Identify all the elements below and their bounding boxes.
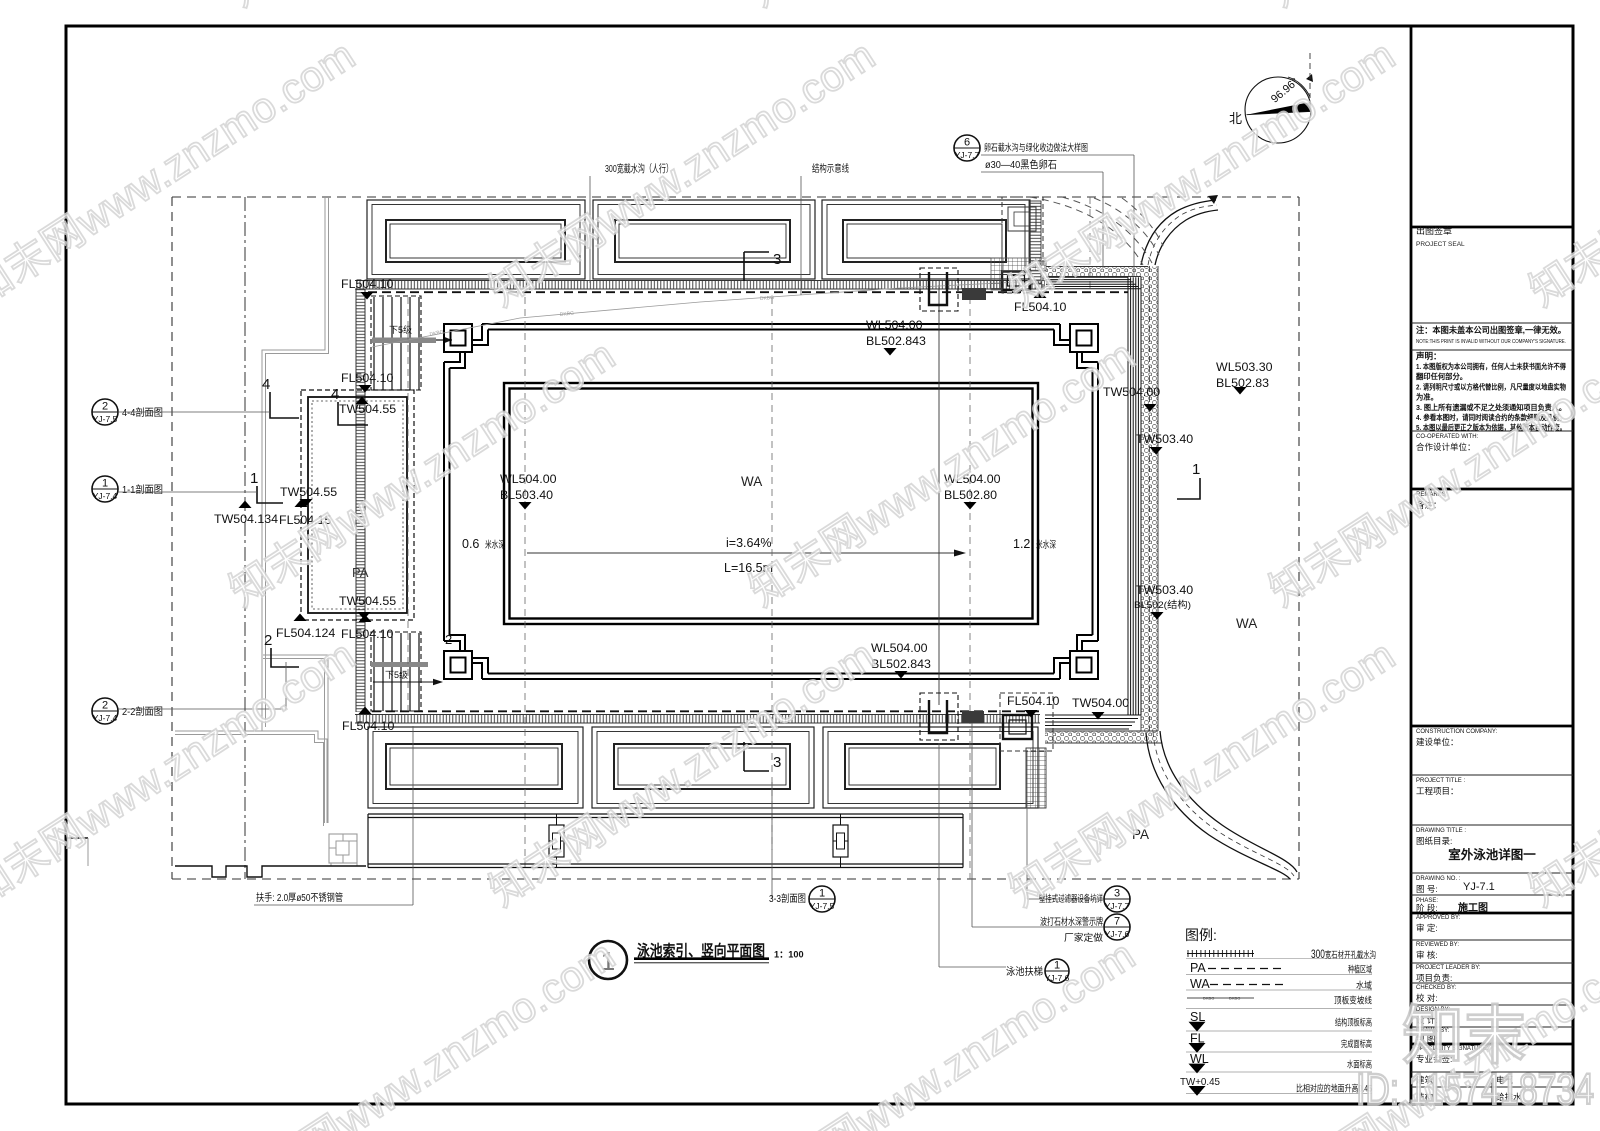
svg-text:阶 段:: 阶 段: [1416, 903, 1438, 913]
svg-text:CONSTRUCTION COMPANY:: CONSTRUCTION COMPANY: [1416, 729, 1498, 735]
svg-text:图 号:: 图 号: [1416, 884, 1438, 894]
svg-text:YJ-7.1: YJ-7.1 [1463, 881, 1495, 893]
svg-text:审 核:: 审 核: [1416, 950, 1438, 960]
svg-text:泳池扶梯: 泳池扶梯 [1006, 965, 1043, 978]
svg-text:CHECKED BY:: CHECKED BY: [1416, 985, 1457, 991]
svg-text:TW504.134: TW504.134 [214, 512, 278, 526]
svg-text:FL504.10: FL504.10 [341, 277, 393, 291]
svg-text:WL504.00: WL504.00 [500, 472, 557, 486]
svg-text:APPROVED BY:: APPROVED BY: [1416, 915, 1461, 921]
svg-text:i=3.64%: i=3.64% [726, 536, 772, 550]
svg-text:BL502.843: BL502.843 [866, 334, 926, 348]
svg-text:1: 1 [819, 888, 825, 900]
svg-text:出图签章: 出图签章 [1416, 225, 1452, 236]
svg-text:泳池索引、竖向平面图: 泳池索引、竖向平面图 [637, 941, 765, 960]
svg-text:米水深: 米水深 [485, 539, 505, 551]
svg-text:7: 7 [1114, 916, 1120, 928]
svg-text:1: 1 [102, 478, 108, 490]
svg-text:WA: WA [741, 474, 762, 489]
svg-text:WA: WA [1190, 977, 1210, 991]
svg-text:4-4剖面图: 4-4剖面图 [122, 406, 163, 419]
svg-text:2: 2 [445, 632, 452, 647]
svg-text:2. 请列明尺寸或以方格代替比例，凡尺量度以地盘实物: 2. 请列明尺寸或以方格代替比例，凡尺量度以地盘实物 [1416, 382, 1567, 391]
svg-text:DKBG: DKBG [1229, 996, 1240, 1001]
svg-text:2: 2 [102, 401, 108, 413]
svg-text:DRAWING TITLE :: DRAWING TITLE : [1416, 828, 1466, 834]
svg-text:TW504.00: TW504.00 [1072, 696, 1129, 710]
svg-text:ø30—40黑色卵石: ø30—40黑色卵石 [985, 158, 1057, 171]
svg-text:TW504.55: TW504.55 [339, 402, 396, 416]
svg-text:卵石截水沟与绿化收边做法大样图: 卵石截水沟与绿化收边做法大样图 [984, 142, 1088, 154]
svg-text:PA: PA [352, 565, 369, 580]
svg-text:YJ-7.5: YJ-7.5 [810, 901, 835, 911]
svg-text:结构示意线: 结构示意线 [812, 162, 849, 175]
svg-text:图例:: 图例: [1185, 927, 1217, 943]
svg-text:1: 1 [250, 470, 258, 487]
svg-text:PA: PA [1190, 961, 1206, 975]
svg-text:BL503.40: BL503.40 [500, 488, 553, 502]
svg-text:TW504.55: TW504.55 [339, 594, 396, 608]
svg-text:FL504.10: FL504.10 [341, 627, 393, 641]
svg-text:注：本图未盖本公司出图签章,一律无效。: 注：本图未盖本公司出图签章,一律无效。 [1416, 325, 1566, 335]
svg-text:YJ-7.4: YJ-7.4 [93, 491, 118, 501]
svg-text:WL504.00: WL504.00 [866, 318, 923, 332]
svg-text:米水深: 米水深 [1036, 539, 1056, 551]
svg-text:下5级: 下5级 [385, 669, 408, 680]
svg-text:3: 3 [1114, 888, 1120, 900]
svg-text:1: 1 [1192, 461, 1200, 478]
svg-text:3: 3 [773, 251, 781, 268]
svg-text:PROJECT TITLE :: PROJECT TITLE : [1416, 778, 1465, 784]
svg-text:ID: 1157418734: ID: 1157418734 [1356, 1065, 1594, 1114]
svg-text:1：100: 1：100 [774, 950, 804, 960]
svg-text:为准。: 为准。 [1416, 393, 1438, 402]
svg-text:下5级: 下5级 [389, 324, 412, 335]
svg-text:TW503.40: TW503.40 [1136, 432, 1193, 446]
svg-text:3-3剖面图: 3-3剖面图 [769, 892, 806, 905]
svg-text:建设单位：: 建设单位： [1416, 737, 1459, 747]
svg-text:完成面标高: 完成面标高 [1341, 1038, 1372, 1049]
svg-text:WA: WA [1236, 616, 1257, 631]
svg-text:2-2剖面图: 2-2剖面图 [122, 705, 163, 718]
svg-text:BL502(结构): BL502(结构) [1134, 599, 1191, 611]
svg-text:顶板变坡线: 顶板变坡线 [1334, 995, 1372, 1006]
svg-text:2: 2 [264, 632, 272, 649]
svg-text:项目负责:: 项目负责: [1416, 973, 1452, 983]
svg-text:厂家定做: 厂家定做 [1064, 932, 1103, 944]
svg-text:DRAWING NO. :: DRAWING NO. : [1416, 876, 1461, 882]
svg-text:知末: 知末 [1402, 1000, 1526, 1072]
svg-text:PROJECT SEAL: PROJECT SEAL [1416, 241, 1465, 248]
svg-text:FL504.10: FL504.10 [342, 719, 394, 733]
svg-text:NOTE:THIS PRINT IS INVALID WIT: NOTE:THIS PRINT IS INVALID WITHOUT OUR C… [1416, 339, 1566, 345]
svg-text:TW503.40: TW503.40 [1136, 583, 1193, 597]
svg-text:0.6: 0.6 [462, 537, 479, 551]
svg-text:WL503.30: WL503.30 [1216, 360, 1273, 374]
svg-text:YJ-7.7: YJ-7.7 [955, 150, 980, 160]
svg-text:6: 6 [964, 137, 970, 149]
svg-text:工程项目：: 工程项目： [1416, 786, 1459, 796]
svg-text:DKBG: DKBG [760, 295, 775, 302]
svg-text:扶手: 2.0厚ø50不锈钢管: 扶手: 2.0厚ø50不锈钢管 [256, 891, 343, 904]
svg-text:YJ-7.7: YJ-7.7 [1105, 901, 1130, 911]
svg-text:WL504.00: WL504.00 [871, 641, 928, 655]
svg-text:施工图: 施工图 [1458, 901, 1488, 914]
svg-text:翻印任何部分。: 翻印任何部分。 [1416, 372, 1467, 381]
svg-text:YJ-7.5: YJ-7.5 [93, 414, 118, 424]
svg-text:FL504.10: FL504.10 [341, 371, 393, 385]
svg-text:4: 4 [331, 386, 339, 403]
svg-text:DKBG: DKBG [1203, 996, 1214, 1001]
svg-text:结构顶板标高: 结构顶板标高 [1335, 1017, 1372, 1028]
svg-text:种植区域: 种植区域 [1348, 964, 1372, 975]
svg-text:YJ-7.4: YJ-7.4 [93, 713, 118, 723]
svg-text:1. 本图版权为本公司拥有，任何人士未获书面允许不得: 1. 本图版权为本公司拥有，任何人士未获书面允许不得 [1416, 362, 1567, 371]
svg-text:TW504.55: TW504.55 [280, 485, 337, 499]
svg-text:2: 2 [102, 700, 108, 712]
svg-text:声明：: 声明： [1415, 351, 1442, 361]
svg-text:1-1剖面图: 1-1剖面图 [122, 483, 163, 496]
svg-text:室外泳池详图一: 室外泳池详图一 [1448, 847, 1536, 862]
svg-text:PROJECT LEADER BY:: PROJECT LEADER BY: [1416, 965, 1481, 971]
svg-text:1.2: 1.2 [1013, 537, 1030, 551]
svg-text:4: 4 [262, 376, 270, 393]
svg-text:3: 3 [773, 754, 781, 771]
svg-text:水域: 水域 [1356, 980, 1372, 991]
svg-text:波打石材水深警示牌: 波打石材水深警示牌 [1040, 916, 1103, 928]
svg-text:审 定:: 审 定: [1416, 923, 1438, 933]
svg-text:图纸目录:: 图纸目录: [1416, 836, 1452, 846]
svg-text:FL504.10: FL504.10 [1007, 694, 1059, 708]
svg-text:REVIEWED BY:: REVIEWED BY: [1416, 942, 1459, 948]
